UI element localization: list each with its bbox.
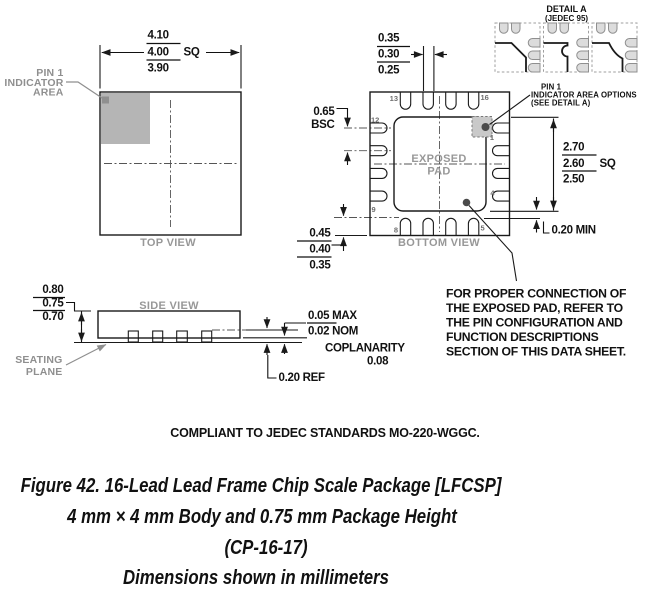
datasheet-package-outline-figure: 4.10 4.00 SQ 3.90 PIN 1 INDICATOR AREA T… — [0, 0, 656, 593]
lead-pad — [528, 64, 540, 73]
pad-dim-min: 2.50 — [563, 174, 584, 186]
pin1-indicator-dot — [482, 123, 490, 131]
pad-clearance-value: 0.20 MIN — [552, 225, 596, 237]
pin1-callout-line3: (SEE DETAIL A) — [531, 99, 591, 108]
note-line2: THE EXPOSED PAD, REFER TO — [446, 301, 623, 315]
coplanarity-label: COPLANARITY — [325, 343, 405, 355]
lead-length-min: 0.35 — [309, 260, 331, 272]
top-view-title: TOP VIEW — [140, 237, 196, 249]
lead-pad — [500, 23, 509, 33]
pad-dim-suffix: SQ — [600, 158, 616, 170]
lead-pad — [597, 23, 606, 33]
exposed-pad-label-line2: PAD — [427, 166, 450, 178]
pin1-area-label-line3: AREA — [33, 87, 64, 99]
lead-pad — [512, 23, 521, 33]
pin-number-9: 9 — [372, 205, 376, 214]
detail-a-option-chamfer — [495, 23, 540, 72]
lead-pad — [560, 23, 569, 33]
lead-pad — [625, 39, 637, 48]
lead-pad — [577, 51, 589, 60]
pin-number-5: 5 — [481, 224, 485, 233]
note-line4: FUNCTION DESCRIPTIONS — [446, 330, 599, 344]
package-drawing: 4.10 4.00 SQ 3.90 PIN 1 INDICATOR AREA T… — [0, 0, 656, 593]
pin-number-8: 8 — [394, 226, 398, 235]
exposed-pad-note: FOR PROPER CONNECTION OF THE EXPOSED PAD… — [446, 287, 626, 359]
seating-plane-label-line2: PLANE — [26, 366, 63, 378]
lead-pad — [577, 64, 589, 73]
standoff-nom: 0.02 NOM — [308, 326, 358, 338]
pad-dim-max: 2.70 — [563, 142, 584, 154]
height-max: 0.80 — [42, 284, 63, 296]
height-min: 0.70 — [42, 311, 63, 323]
body-dim-max: 4.10 — [148, 30, 169, 42]
body-dim-min: 3.90 — [148, 63, 169, 75]
exposed-pad-label-line1: EXPOSED — [411, 153, 466, 165]
leader-dot — [102, 97, 109, 104]
pin-number-1: 1 — [490, 133, 494, 142]
caption-line3: (CP-16-17) — [224, 535, 307, 558]
pin-number-12: 12 — [371, 116, 379, 125]
lead-width-nom: 0.30 — [378, 49, 399, 61]
caption-line4: Dimensions shown in millimeters — [123, 565, 389, 588]
pad-dim-nom: 2.60 — [563, 158, 584, 170]
lead-thickness-value: 0.20 REF — [279, 372, 325, 384]
pitch-qualifier: BSC — [311, 119, 334, 131]
pitch-value: 0.65 — [313, 106, 335, 118]
standoff-max: 0.05 MAX — [308, 310, 357, 322]
lead-pad — [528, 51, 540, 60]
lead-pad — [625, 64, 637, 73]
bottom-view-title: BOTTOM VIEW — [398, 237, 480, 249]
detail-a-option-notch — [544, 23, 589, 72]
note-line1: FOR PROPER CONNECTION OF — [446, 287, 626, 301]
lead-pad — [528, 39, 540, 48]
coplanarity-value: 0.08 — [367, 356, 389, 368]
lead-width-max: 0.35 — [378, 33, 400, 45]
lead-pad — [548, 23, 557, 33]
body-dim-nom: 4.00 — [148, 47, 169, 59]
lead-pad — [625, 51, 637, 60]
lead-pad — [577, 39, 589, 48]
lead-length-max: 0.45 — [309, 228, 331, 240]
note-line5: SECTION OF THIS DATA SHEET. — [446, 345, 626, 359]
exposed-pad-note-dot — [463, 199, 471, 207]
height-nom: 0.75 — [42, 298, 64, 310]
side-view-title: SIDE VIEW — [139, 300, 199, 312]
detail-a-title: DETAIL A — [546, 4, 587, 14]
seating-plane-label-line1: SEATING — [15, 354, 62, 366]
detail-a-option-radius — [592, 23, 637, 72]
detail-a-subtitle: (JEDEC 95) — [545, 14, 588, 23]
body-dim-suffix: SQ — [184, 47, 200, 59]
lead-length-nom: 0.40 — [309, 244, 330, 256]
pin-number-13: 13 — [390, 94, 398, 103]
compliance-note: COMPLIANT TO JEDEC STANDARDS MO-220-WGGC… — [170, 426, 479, 440]
note-line3: THE PIN CONFIGURATION AND — [446, 316, 623, 330]
lead-pad — [609, 23, 618, 33]
caption-line2: 4 mm × 4 mm Body and 0.75 mm Package Hei… — [66, 504, 457, 527]
lead-width-min: 0.25 — [378, 65, 400, 77]
pin-number-16: 16 — [481, 93, 489, 102]
caption-line1: Figure 42. 16-Lead Lead Frame Chip Scale… — [21, 473, 502, 496]
